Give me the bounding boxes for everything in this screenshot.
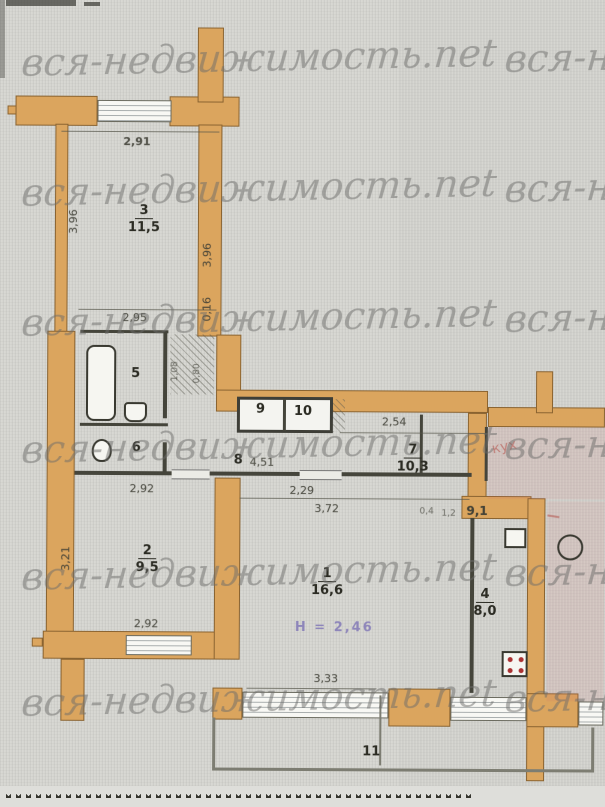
dim-hall-top: 2,54 <box>382 415 407 428</box>
window-right-edge <box>578 701 603 725</box>
room3-area: 11,5 <box>121 220 167 235</box>
dim-room1-top-left: 2,29 <box>290 484 315 497</box>
wall-balcony-door-block <box>388 688 450 726</box>
room3-number: 3 <box>135 204 152 219</box>
dim-balcony: 3,33 <box>314 672 339 685</box>
room3-label: 3 11,5 <box>121 199 167 235</box>
balcony-edge-right <box>591 728 594 772</box>
dimline-balcony <box>247 688 377 690</box>
door-room2 <box>172 469 210 479</box>
wall-top-pillar <box>198 27 224 102</box>
dim-room3-height-right: 3,96 <box>201 243 214 268</box>
dim-niche-a: 1,08 <box>170 361 180 381</box>
kitchen-sink-icon <box>504 528 526 548</box>
stove-burners <box>508 657 513 662</box>
balcony-edge-bottom <box>212 768 594 773</box>
room7-area: 10,3 <box>388 459 438 474</box>
dimline-top <box>61 131 219 133</box>
toilet-icon <box>124 402 147 422</box>
wall-bathroom-right-a <box>163 330 167 418</box>
room1-number: 1 <box>319 567 336 582</box>
dim-kitchen-bold: 9,1 <box>466 504 487 518</box>
dim-room3-height-left: 3,96 <box>67 209 80 234</box>
room11-number: 11 <box>362 744 380 759</box>
balcony-edge-left <box>212 718 215 770</box>
wall-bottom-left-down <box>60 659 84 721</box>
room4-number: 4 <box>476 588 493 603</box>
wall-top-left <box>15 95 97 125</box>
room7-number: 7 <box>404 444 421 459</box>
dimline-room1 <box>240 498 470 500</box>
wall-balcony-left <box>212 688 242 720</box>
dim-niche-b: 0,80 <box>192 363 202 383</box>
door-room1 <box>300 470 342 480</box>
wall-left-lower <box>46 331 76 634</box>
room1-area: 16,6 <box>302 583 352 598</box>
neighbour-area-right <box>546 501 604 701</box>
wall-tick-bottom <box>32 638 43 647</box>
dim-kitchen-b: 1,2 <box>441 509 455 519</box>
room1-label: 1 16,6 <box>302 562 352 598</box>
dim-kitchen-a: 0,4 <box>419 507 433 517</box>
wall-bathroom-right-b <box>163 442 167 474</box>
scan-zigzag-edge <box>6 789 474 798</box>
stove-icon <box>502 651 528 677</box>
dim-room2-height: 3,21 <box>59 546 72 571</box>
room2-number: 2 <box>139 544 156 559</box>
wall-stub-up <box>536 371 553 413</box>
room8-number: 8 <box>234 453 243 468</box>
dim-top-width: 2,91 <box>123 135 150 148</box>
dim-room1-top: 3,72 <box>314 502 339 515</box>
dim-room2-bottom: 2,92 <box>134 617 159 630</box>
room10-number: 10 <box>294 404 312 419</box>
room4-area: 8,0 <box>465 604 505 619</box>
dim-room2-top: 2,92 <box>130 482 155 495</box>
floorplan-drawing: 2,91 3,96 3,96 0,16 2,95 1,08 0,80 2,54 … <box>0 0 605 807</box>
room2-area: 9,5 <box>124 560 170 575</box>
scanned-floorplan-photo: 2,91 3,96 3,96 0,16 2,95 1,08 0,80 2,54 … <box>0 0 605 807</box>
room4-label: 4 8,0 <box>465 583 505 619</box>
room2-label: 2 9,5 <box>124 539 170 575</box>
ceiling-height-note: H = 2,46 <box>295 620 374 635</box>
window-room1 <box>242 692 388 719</box>
window-top <box>97 100 171 122</box>
window-room2 <box>126 635 192 655</box>
shaft-hatch <box>333 399 345 432</box>
dimline-hall <box>340 432 488 434</box>
room6-number: 6 <box>132 440 141 455</box>
wall-room2-right <box>214 478 241 660</box>
bathtub-icon <box>86 345 116 421</box>
wall-tick-top <box>8 105 17 114</box>
room7-label: 7 10,3 <box>388 438 438 474</box>
neighbour-sink-icon <box>557 534 583 560</box>
wall-bath-wc-divider <box>80 423 168 426</box>
wall-bathroom-top <box>80 330 168 333</box>
dim-room3-width: 2,95 <box>122 311 147 324</box>
wall-right-vertical <box>526 498 545 781</box>
dim-corridor: 4,51 <box>250 456 275 469</box>
dim-room3-offset: 0,16 <box>200 297 213 322</box>
window-kitchen <box>450 697 526 721</box>
room5-number: 5 <box>131 366 140 381</box>
closet-divider <box>283 399 286 431</box>
sink-icon <box>92 439 112 462</box>
room9-number: 9 <box>256 402 265 417</box>
